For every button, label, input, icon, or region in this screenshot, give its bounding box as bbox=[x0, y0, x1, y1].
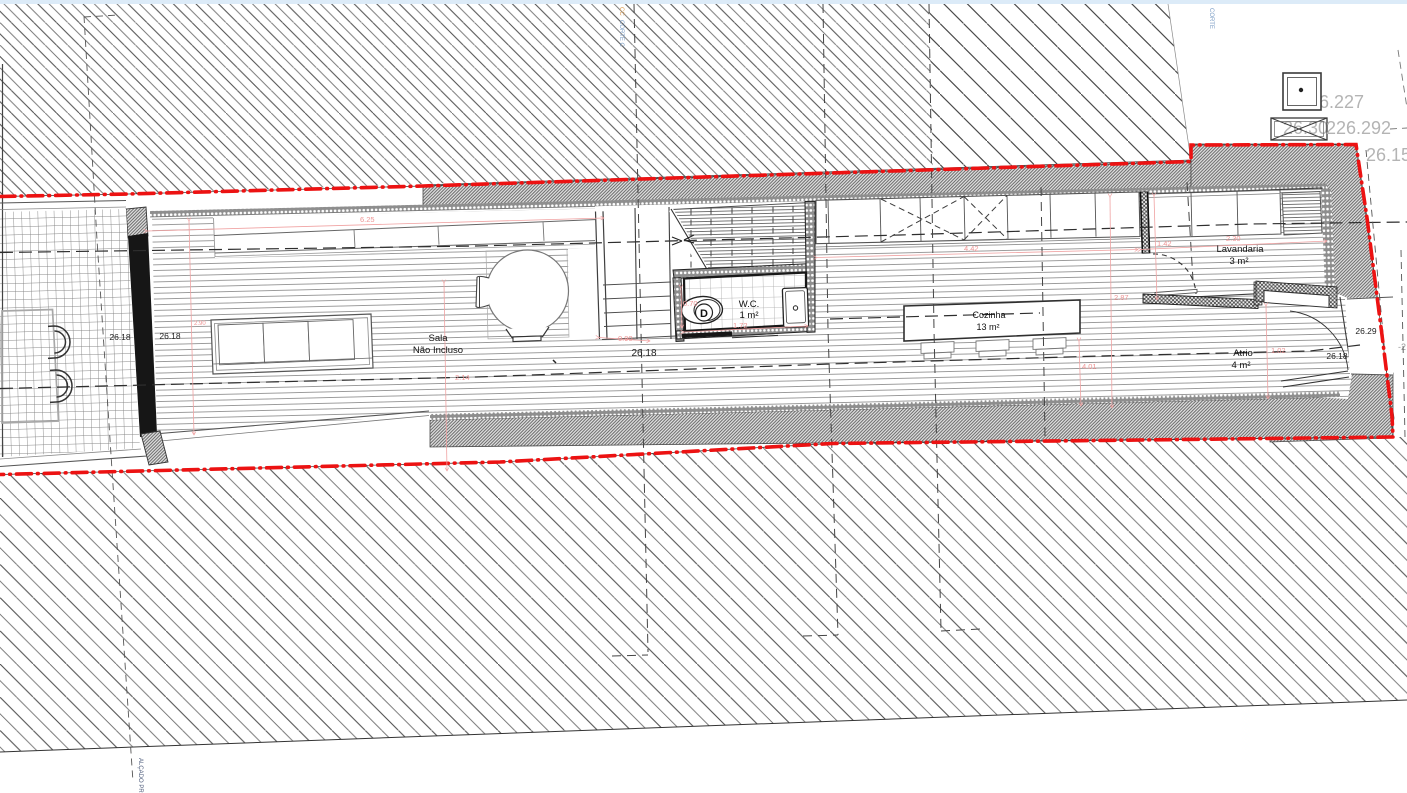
svg-text:2.14: 2.14 bbox=[455, 373, 470, 382]
svg-text:13 m²: 13 m² bbox=[976, 322, 999, 332]
svg-text:Lavandaria: Lavandaria bbox=[1216, 244, 1264, 255]
svg-text:W.C.: W.C. bbox=[739, 299, 760, 310]
svg-text:Cozinha: Cozinha bbox=[972, 310, 1005, 320]
svg-text:CORTE C: CORTE C bbox=[618, 20, 624, 48]
svg-text:26.29: 26.29 bbox=[1355, 326, 1377, 336]
svg-text:4.42: 4.42 bbox=[964, 244, 979, 253]
svg-text:6.25: 6.25 bbox=[360, 215, 375, 224]
svg-text:4 m²: 4 m² bbox=[1232, 360, 1251, 371]
svg-text:D: D bbox=[700, 308, 708, 320]
svg-text:Sala: Sala bbox=[428, 333, 448, 344]
svg-text:-2: -2 bbox=[1398, 342, 1406, 352]
svg-text:26.15: 26.15 bbox=[1366, 145, 1407, 165]
svg-text:26.18: 26.18 bbox=[159, 331, 181, 341]
svg-text:4.01: 4.01 bbox=[1082, 362, 1097, 371]
svg-text:26.30: 26.30 bbox=[1283, 118, 1328, 138]
svg-text:26.18: 26.18 bbox=[1326, 351, 1348, 361]
svg-text:1.02: 1.02 bbox=[1271, 346, 1286, 355]
svg-text:1 m²: 1 m² bbox=[740, 310, 759, 321]
svg-text:Atrio: Atrio bbox=[1233, 348, 1253, 359]
svg-text:2.90: 2.90 bbox=[194, 321, 206, 327]
svg-text:1.42: 1.42 bbox=[1157, 239, 1172, 248]
svg-text:0.70: 0.70 bbox=[683, 299, 698, 308]
svg-text:26.18: 26.18 bbox=[631, 348, 656, 359]
svg-text:226.292: 226.292 bbox=[1326, 118, 1391, 138]
svg-text:2.87: 2.87 bbox=[1114, 293, 1129, 302]
svg-text:Não Incluso: Não Incluso bbox=[413, 345, 463, 356]
svg-text:26.18: 26.18 bbox=[109, 332, 131, 342]
svg-text:ALÇADO PRINCIPAL: ALÇADO PRINCIPAL bbox=[137, 758, 143, 793]
svg-text:1.72: 1.72 bbox=[733, 321, 748, 330]
svg-text:0.90: 0.90 bbox=[618, 334, 633, 343]
svg-text:CC: CC bbox=[618, 7, 624, 16]
svg-text:CORTE: CORTE bbox=[1208, 8, 1214, 29]
svg-text:3 m²: 3 m² bbox=[1230, 256, 1249, 267]
svg-text:2.30: 2.30 bbox=[1226, 234, 1241, 243]
